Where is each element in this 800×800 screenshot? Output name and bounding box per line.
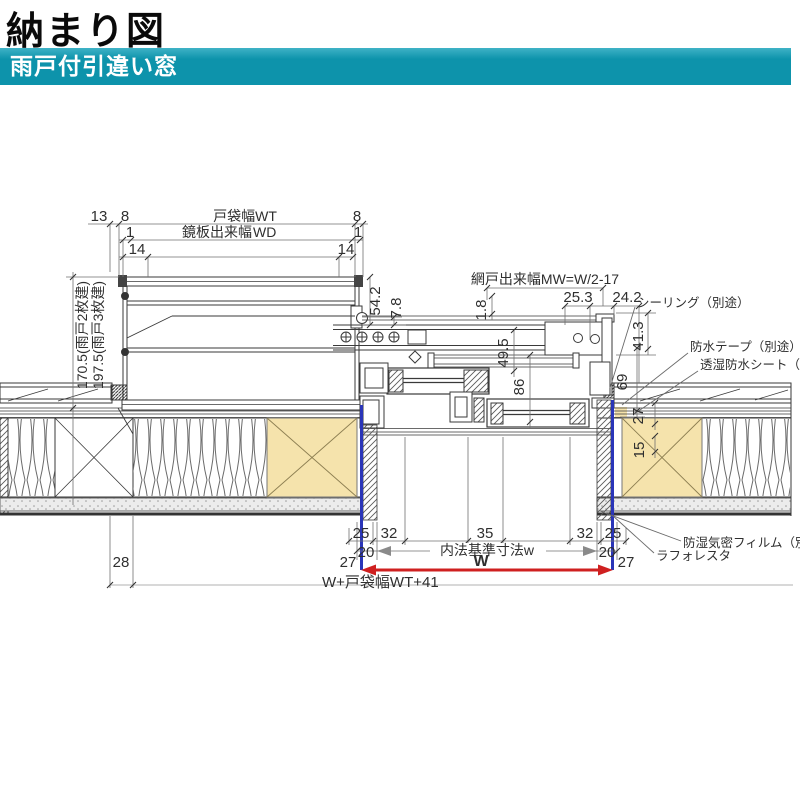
dim-panel-value: WD [253, 224, 276, 240]
right-opening-hatch [597, 400, 611, 520]
dim-20-right: 20 [599, 544, 616, 561]
dim-20-left: 20 [358, 544, 375, 561]
exterior-sash [387, 368, 489, 394]
dim-14-left: 14 [129, 241, 146, 258]
dim-86: 86 [511, 379, 528, 396]
dim-27-upper-right: 27 [630, 408, 647, 425]
dim-8-right: 8 [353, 208, 361, 225]
dim-54-2: 54.2 [367, 286, 384, 315]
note-vapor-film: 防湿気密フィルム（別途） [683, 535, 800, 550]
dim-w: W [473, 553, 489, 570]
interior-sash [487, 399, 589, 427]
dim-7-8: 7.8 [388, 298, 405, 319]
dim-1-left: 1 [126, 224, 134, 241]
dim-14-right: 14 [338, 241, 355, 258]
left-jamb [360, 363, 388, 428]
dim-49-5: 49.5 [495, 338, 512, 367]
dim-35: 35 [477, 525, 494, 542]
note-breathable-sheet: 透湿防水シート（別途） [700, 357, 800, 372]
dim-8-left: 8 [121, 208, 129, 225]
note-product: ラフォレスタ [656, 549, 731, 563]
dim-panel-label: 鏡板出来幅 [182, 224, 252, 240]
screw-symbols [341, 332, 399, 342]
dim-1-8: 1.8 [473, 300, 490, 321]
dim-15: 15 [631, 442, 648, 459]
window-frame-and-sashes [333, 314, 614, 520]
installation-cross-section-drawing: 13 8 戸袋幅WT 8 1 鏡板出来幅 WD 1 14 14 170.5(雨戸… [0, 0, 800, 800]
dim-25-3: 25.3 [563, 289, 592, 306]
dim-28: 28 [113, 554, 130, 571]
dim-41-3: 41.3 [630, 321, 647, 350]
dim-1-right: 1 [354, 224, 362, 241]
dim-27-left: 27 [340, 554, 357, 571]
dim-13: 13 [91, 208, 108, 225]
dim-screen-width: 網戸出来幅MW=W/2-17 [471, 271, 619, 287]
dim-25-right: 25 [605, 525, 622, 542]
left-opening-hatch [363, 425, 377, 520]
note-waterproof-tape: 防水テープ（別途） [690, 339, 800, 354]
dim-pocket-width: 戸袋幅WT [213, 208, 277, 224]
shutter-pocket [111, 275, 368, 434]
right-wall-section [597, 383, 791, 516]
dim-32-left: 32 [381, 525, 398, 542]
meeting-stile-interlock [450, 392, 484, 422]
dim-69: 69 [614, 374, 631, 391]
dim-total-width: W+戸袋幅WT+41 [322, 574, 439, 591]
note-sealing: シーリング（別途） [637, 295, 750, 310]
dim-27-right: 27 [618, 554, 635, 571]
dim-170-5-two-panel: 170.5(雨戸2枚建) [74, 281, 90, 389]
dim-32-right: 32 [577, 525, 594, 542]
dim-197-5-three-panel: 197.5(雨戸3枚建) [90, 281, 106, 389]
dim-25-left: 25 [353, 525, 370, 542]
